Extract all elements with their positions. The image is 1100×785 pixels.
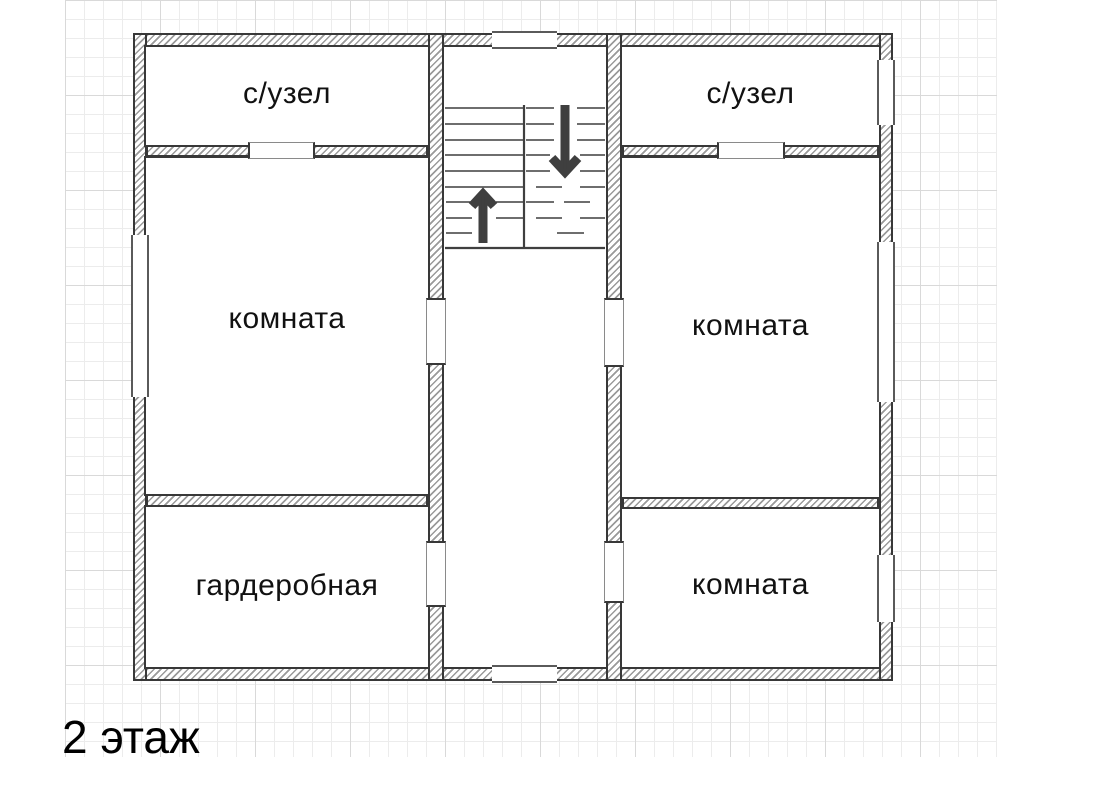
door-bathroom-right — [717, 142, 785, 159]
label-wardrobe: гардеробная — [144, 571, 430, 601]
stairs-down-arrow-icon — [552, 105, 578, 172]
label-room-left: комната — [144, 304, 430, 334]
floor-title: 2 этаж — [62, 714, 200, 760]
label-room-right: комната — [620, 311, 881, 341]
floor-plan-canvas: с/узел с/узел комната комната гардеробна… — [0, 0, 1100, 785]
opening-bottom-wall-hall — [492, 665, 557, 683]
label-bathroom-right: с/узел — [620, 79, 881, 109]
stairs-up-arrow-icon — [472, 194, 494, 243]
label-bathroom-left: с/узел — [144, 79, 430, 109]
door-bathroom-left — [248, 142, 315, 159]
staircase — [444, 47, 606, 251]
label-room-bottom-right: комната — [620, 570, 881, 600]
